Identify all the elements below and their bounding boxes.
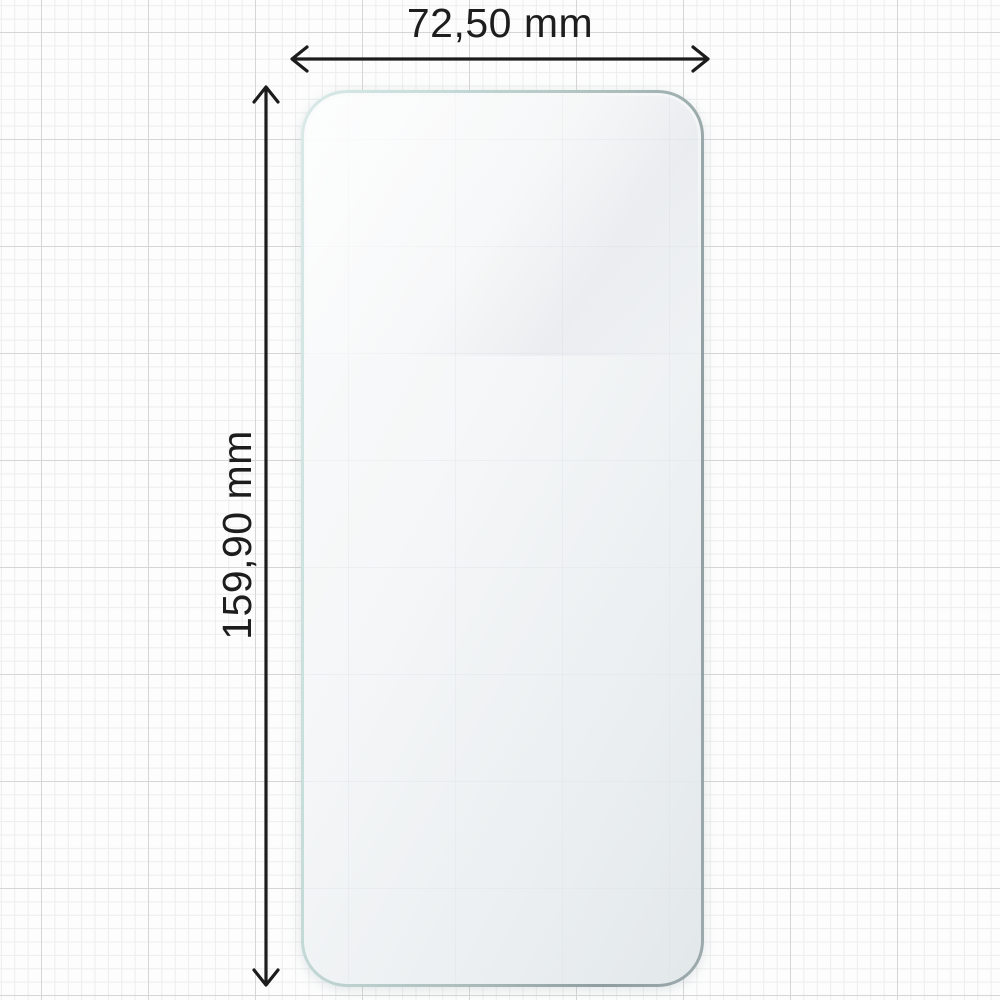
graph-paper-background: { "dimensions": { "width_label": "72,50 … xyxy=(0,0,1000,1000)
height-dimension-arrow xyxy=(249,83,283,989)
screen-protector-surface xyxy=(304,93,701,984)
width-dimension-arrow xyxy=(288,42,712,76)
width-dimension-label: 72,50 mm xyxy=(290,0,710,46)
dimension-diagram: 72,50 mm 159,90 mm xyxy=(0,0,1000,1000)
screen-protector xyxy=(301,90,704,987)
